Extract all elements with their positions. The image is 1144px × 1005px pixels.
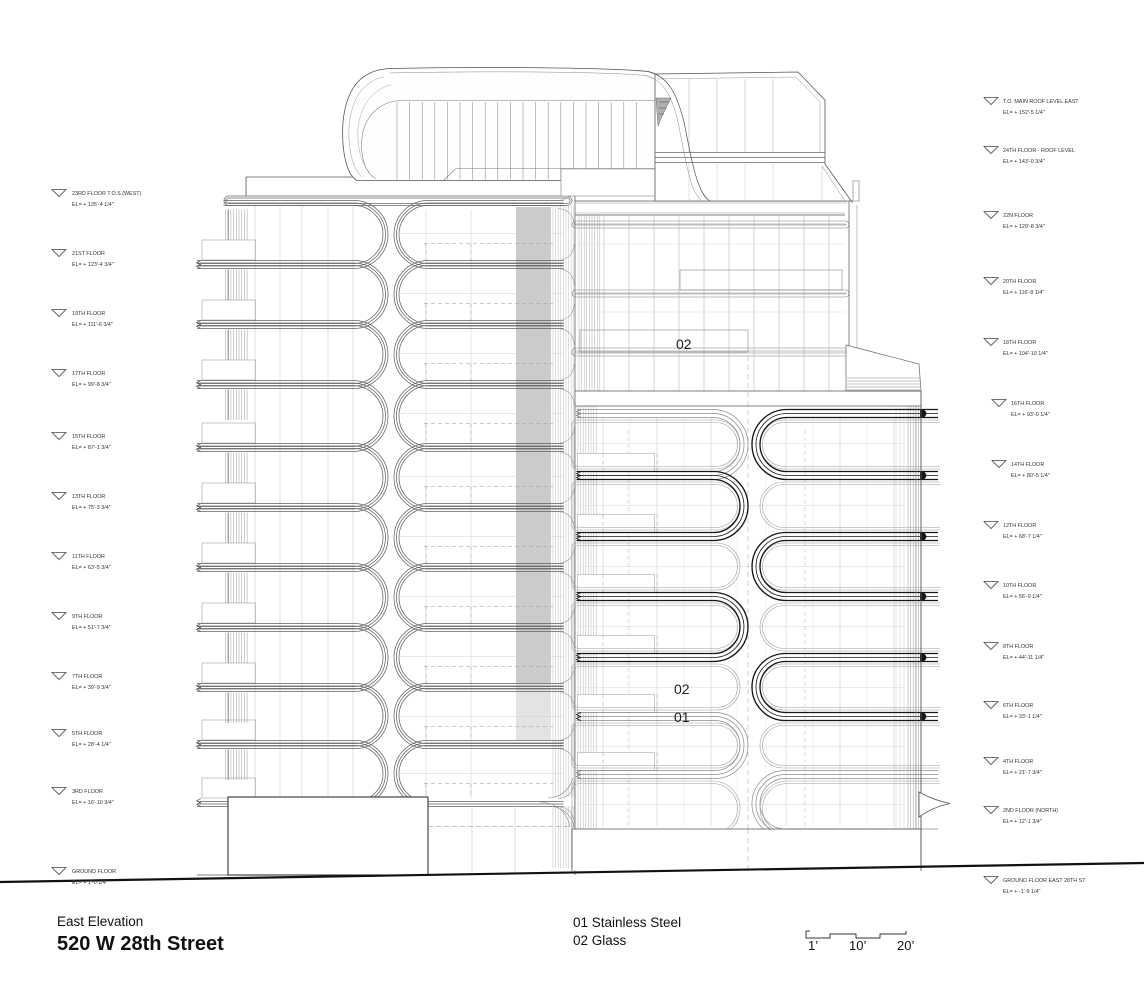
svg-text:13TH FLOOR: 13TH FLOOR — [72, 494, 105, 500]
svg-text:6TH FLOOR: 6TH FLOOR — [1003, 703, 1033, 709]
svg-text:18TH FLOOR: 18TH FLOOR — [1003, 340, 1036, 346]
svg-text:16TH FLOOR: 16TH FLOOR — [1011, 401, 1044, 407]
svg-text:EL= + 21'-7 3/4": EL= + 21'-7 3/4" — [1003, 770, 1042, 776]
svg-text:GROUND FLOOR: GROUND FLOOR — [72, 869, 116, 875]
svg-text:EL= + 28'-4 1/4": EL= + 28'-4 1/4" — [72, 742, 111, 748]
svg-text:7TH FLOOR: 7TH FLOOR — [72, 674, 102, 680]
svg-text:EL= + 33'-1 1/4": EL= + 33'-1 1/4" — [1003, 714, 1042, 720]
svg-text:15TH FLOOR: 15TH FLOOR — [72, 434, 105, 440]
svg-text:EL= + 80'-5 1/4": EL= + 80'-5 1/4" — [1011, 473, 1050, 479]
svg-text:EL= + 123'-4 3/4": EL= + 123'-4 3/4" — [72, 262, 114, 268]
svg-text:EL= + 116'-8 1/4": EL= + 116'-8 1/4" — [1003, 290, 1044, 296]
svg-text:EL= + 143'-0 3/4": EL= + 143'-0 3/4" — [1003, 159, 1045, 165]
svg-text:24TH FLOOR - ROOF LEVEL: 24TH FLOOR - ROOF LEVEL — [1003, 148, 1075, 154]
svg-text:9TH FLOOR: 9TH FLOOR — [72, 614, 102, 620]
svg-text:EL= + 51'-7 3/4": EL= + 51'-7 3/4" — [72, 625, 111, 631]
svg-text:GROUND FLOOR EAST 28TH ST: GROUND FLOOR EAST 28TH ST — [1003, 878, 1086, 884]
svg-text:02 Glass: 02 Glass — [573, 933, 627, 948]
svg-text:EL= + 129'-8 3/4": EL= + 129'-8 3/4" — [1003, 224, 1045, 230]
svg-text:EL= + 87'-1 3/4": EL= + 87'-1 3/4" — [72, 445, 111, 451]
svg-text:20’: 20’ — [897, 938, 914, 953]
svg-text:12TH FLOOR: 12TH FLOOR — [1003, 523, 1036, 529]
svg-text:01 Stainless Steel: 01 Stainless Steel — [573, 915, 681, 930]
svg-text:EL= + 111'-6 3/4": EL= + 111'-6 3/4" — [72, 322, 113, 328]
svg-text:EL= + 104'-10 1/4": EL= + 104'-10 1/4" — [1003, 351, 1048, 357]
svg-text:EL= + 135'-4 1/4": EL= + 135'-4 1/4" — [72, 202, 114, 208]
svg-text:02: 02 — [676, 336, 692, 352]
svg-text:5TH FLOOR: 5TH FLOOR — [72, 731, 102, 737]
svg-text:19TH FLOOR: 19TH FLOOR — [72, 311, 105, 317]
svg-text:EL= + -1'-9 1/4": EL= + -1'-9 1/4" — [1003, 889, 1040, 895]
svg-text:23RD FLOOR T.O.S.(WEST): 23RD FLOOR T.O.S.(WEST) — [72, 191, 142, 197]
svg-text:EL= + 44'-11 1/4": EL= + 44'-11 1/4" — [1003, 655, 1044, 661]
svg-text:10TH FLOOR: 10TH FLOOR — [1003, 583, 1036, 589]
svg-text:EL= + 56'-9 1/4": EL= + 56'-9 1/4" — [1003, 594, 1042, 600]
svg-text:EL= + 75'-3 3/4": EL= + 75'-3 3/4" — [72, 505, 111, 511]
svg-text:EL= + 152'-5 1/4": EL= + 152'-5 1/4" — [1003, 110, 1045, 116]
svg-text:3RD FLOOR: 3RD FLOOR — [72, 789, 103, 795]
svg-text:4TH FLOOR: 4TH FLOOR — [1003, 759, 1033, 765]
svg-text:East Elevation: East Elevation — [57, 914, 143, 929]
svg-text:EL= + 68'-7 1/4": EL= + 68'-7 1/4" — [1003, 534, 1042, 540]
svg-text:1’: 1’ — [808, 938, 818, 953]
svg-text:520 W 28th Street: 520 W 28th Street — [57, 933, 224, 955]
svg-text:22N FLOOR: 22N FLOOR — [1003, 213, 1033, 219]
svg-text:EL= + 1'-0 1/4": EL= + 1'-0 1/4" — [72, 880, 108, 886]
svg-text:21ST FLOOR: 21ST FLOOR — [72, 251, 105, 257]
svg-text:EL= + 39'-9 3/4": EL= + 39'-9 3/4" — [72, 685, 111, 691]
svg-text:10’: 10’ — [849, 938, 866, 953]
svg-text:11TH FLOOR: 11TH FLOOR — [72, 554, 105, 560]
svg-text:2ND FLOOR (NORTH): 2ND FLOOR (NORTH) — [1003, 808, 1058, 814]
svg-text:14TH FLOOR: 14TH FLOOR — [1011, 462, 1044, 468]
svg-text:EL= + 63'-5 3/4": EL= + 63'-5 3/4" — [72, 565, 111, 571]
svg-text:T.O. MAIN ROOF LEVEL EAST: T.O. MAIN ROOF LEVEL EAST — [1003, 99, 1079, 105]
svg-text:02: 02 — [674, 681, 690, 697]
svg-text:EL= + 93'-0 1/4": EL= + 93'-0 1/4" — [1011, 412, 1050, 418]
svg-text:17TH FLOOR: 17TH FLOOR — [72, 371, 105, 377]
svg-text:EL= + 12'-1 3/4": EL= + 12'-1 3/4" — [1003, 819, 1042, 825]
svg-text:20TH FLOOR: 20TH FLOOR — [1003, 279, 1036, 285]
svg-text:EL= + 99'-8 3/4": EL= + 99'-8 3/4" — [72, 382, 111, 388]
svg-text:EL= + 16'-10 3/4": EL= + 16'-10 3/4" — [72, 800, 114, 806]
svg-text:01: 01 — [674, 709, 690, 725]
svg-text:8TH FLOOR: 8TH FLOOR — [1003, 644, 1033, 650]
